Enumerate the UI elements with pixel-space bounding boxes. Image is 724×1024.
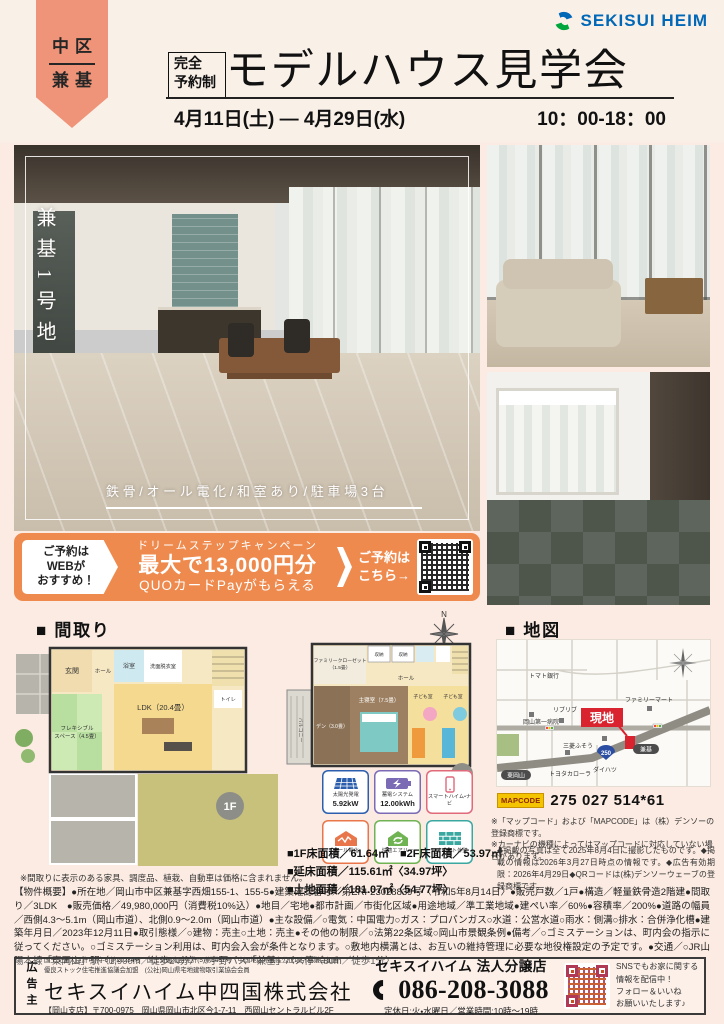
area-badge-top: 中区 [46,35,98,60]
reserve-badge-top: 完全 [174,56,220,75]
sns-line-3: フォロー＆いいね [616,986,698,998]
map-label-famima: ファミリーマート [625,697,673,704]
room-label-bath: 浴室 [123,662,135,670]
qr-finder [419,541,431,553]
photo-caption: 鉄骨/オール電化/和室あり/駐車場3台 [106,481,422,509]
map-label-riburibu: リブリブ [553,706,577,714]
event-dates: 4月11日(土) ― 4月29日(水) [174,104,405,131]
advertiser-vertical-label: 広告主 [23,961,39,1011]
qr-finder [596,965,608,977]
mapcode-badge: MAPCODE [497,793,544,808]
feature-label: 蓄電システム [382,792,413,798]
phone-number: 086-208-3088 [398,975,548,1005]
campaign-banner: ご予約は WEBが おすすめ！ ドリームステップキャンペーン 最大で13,000… [14,533,480,601]
reserve-badge-bottom: 予約制 [174,75,220,94]
map-label-hospital: 岡山第一病院 [523,718,559,726]
feature-smart-heim-navi: スマートハイム・ナビ [426,770,473,814]
campaign-subline: QUOカードPayがもらえる [118,578,337,594]
map-label-bank: トマト銀行 [529,672,559,680]
floorplan-2f: ファミリークローゼット （1.5畳） 収納 収納 ホール デン（3.0畳） 主寝… [286,640,478,786]
photo-closet [650,372,710,500]
compass-n-label: N [441,610,447,619]
map-heading: ■ 地図 [505,616,561,641]
room-label-family-closet-size: （1.5畳） [329,665,350,671]
sns-qr-code [564,963,610,1009]
reservation-required-badge: 完全 予約制 [168,52,226,98]
title-underline [166,97,674,99]
map-busstop-badge: 兼基 [640,746,652,754]
footer-advertiser-box: 広告主 国土交通大臣許可(特-5)第20234号 国土交通大臣免許(5)第646… [14,957,706,1015]
room-label-closet: 収納 [375,651,384,658]
logo-text: SEKISUI HEIM [581,11,708,31]
map-site-marker: 現地 [590,710,614,725]
room-label-ldk: LDK（20.4畳） [137,703,189,712]
battery-icon [385,776,411,791]
web-reservation-box: ご予約は WEBが おすすめ！ [22,540,118,594]
license-line-2: 優良ストック住宅推進協議会加盟 (公社)岡山県宅地建物取引業協会会員 [44,966,366,975]
floor-badge-1f: 1F [224,801,237,813]
room-label-den: デン（3.0畳） [316,723,348,730]
photo-sideboard [645,278,703,314]
sns-line-1: SNSでもお家に関する [616,961,698,973]
floorplan-heading: ■ 間取り [36,616,111,641]
web-line2: WEBが [47,560,85,575]
shop-name: セキスイハイム 法人分譲店 [366,955,556,975]
flyer-page: 中区 兼基 SEKISUI HEIM 完全 予約制 モデルハウス見学会 4月11… [0,0,724,1024]
event-time: 10：00-18：00 [537,104,666,131]
web-line1: ご予約は [43,545,89,560]
map-station-badge: 東岡山 [507,772,525,780]
feature-label: スマートハイム・ナビ [427,795,472,808]
event-title: モデルハウス見学会 [226,36,628,98]
feature-value: 12.00kWh [380,799,415,808]
photo-chair [284,319,310,353]
feature-value: 5.92kW [333,799,359,808]
mapcode-number: 275 027 514*61 [550,792,664,809]
qr-finder [419,581,431,593]
room-label-genkan: 玄関 [65,666,79,675]
room-label-kids1: 子ども室 [413,693,432,700]
branch-address: 【岡山支店】〒700-0975 岡山県岡山市北区今1-7-11 西岡山セントラル… [44,1005,366,1016]
map-label-daihatsu: ダイハツ [593,766,617,774]
photo-kitchen-tile [172,214,237,307]
map-compass-icon [669,648,697,678]
qr-finder [566,995,578,1007]
sekisui-heim-logo: SEKISUI HEIM [553,10,708,32]
qr-finder [566,965,578,977]
arrow-chevron-icon [337,547,352,587]
license-line-1: 国土交通大臣許可(特-5)第20234号 国土交通大臣免許(5)第6461号 中… [44,956,366,965]
photo-chair [228,323,254,357]
access-map: トマト銀行 リブリブ ファミリーマート 岡山第一病院 三菱ふそう トヨタカローラ… [497,640,710,786]
room-label-kids2: 子ども室 [443,693,462,700]
sekisui-heim-mark-icon [553,10,575,32]
room-label-closet: 収納 [399,651,408,658]
feature-battery: 蓄電システム 12.00kWh [374,770,421,814]
solar-panel-icon [333,776,359,791]
ribbon-divider [49,63,95,65]
area-line-total: ■延床面積／115.61㎡〈34.97坪〉 [287,863,502,881]
photo-main-interior: 兼基1号地 鉄骨/オール電化/和室あり/駐車場3台 [14,145,480,531]
map-label-toyota: トヨタカローラ [549,770,591,778]
photo-japanese-room [487,372,710,605]
photo-japanese-window [496,388,619,495]
room-label-wash: 洗面脱衣室 [150,662,176,670]
cta-line2: こちら→ [358,567,410,585]
map-label-fuso: 三菱ふそう [563,742,593,750]
qr-finder [459,541,471,553]
room-label-hall: ホール [95,668,112,675]
sns-line-2: 情報を配信中！ [616,974,698,986]
company-name: セキスイハイム中四国株式会社 [44,975,366,1005]
room-label-toilet: トイレ [220,697,236,703]
area-badge-bottom: 兼基 [46,69,98,94]
room-label-flex2: スペース（4.5畳） [54,733,100,740]
campaign-subtitle: ドリームステップキャンペーン [118,540,337,553]
map-drawing: トマト銀行 リブリブ ファミリーマート 岡山第一病院 三菱ふそう トヨタカローラ… [497,640,710,786]
campaign-headline: 最大で13,000円分 [118,553,337,578]
web-line3: おすすめ！ [37,574,95,589]
photo-sofa [496,280,621,347]
feature-label: 太陽光発電 [332,792,358,798]
phone-icon [373,980,393,1000]
floorplan-note: ※間取りに表示のある家具、調度品、植栽、自動車は価格に含まれません。 [20,872,307,884]
sns-line-4: お願いいたします♪ [616,998,698,1010]
reservation-qr-code [417,539,473,595]
photo-tatami-floor [487,500,710,605]
mapcode-note-1: ※「マップコード」および「MAPCODE」は（株）デンソーの登録商標です。 [491,816,717,839]
site-name-vertical-label: 兼基1号地 [30,207,59,352]
area-line-floor: ■1F床面積／61.64㎡ ■2F床面積／53.97㎡ [287,845,502,863]
cta-line1: ご予約は [358,549,410,567]
room-label-family-closet: ファミリークローゼット [314,657,367,664]
area-ribbon-badge: 中区 兼基 [36,0,108,128]
photo-living-room [487,145,710,367]
room-label-hall-2f: ホール [398,675,415,682]
room-label-balcony: バルコニー [297,718,303,743]
room-label-bedroom: 主寝室（7.5畳） [359,696,400,704]
room-label-flex1: フレキシブル [60,724,94,732]
feature-solar: 太陽光発電 5.92kW [322,770,369,814]
smartphone-icon [437,776,463,793]
floorplan-1f: 玄関 ホール 浴室 洗面脱衣室 トイレ LDK（20.4畳） フレキシブル スペ… [14,642,279,870]
business-hours: 定休日:火・水曜日／営業時間:10時〜19時 [366,1005,556,1017]
map-route-shield: 250 [601,751,612,757]
